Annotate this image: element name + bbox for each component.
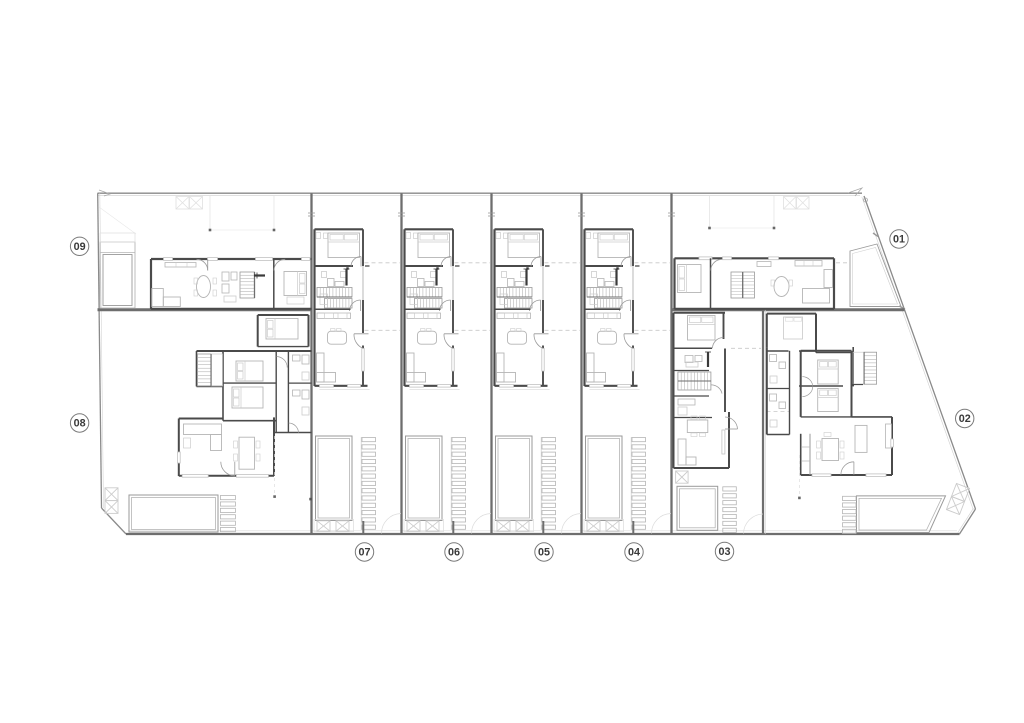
svg-text:08: 08 bbox=[74, 418, 86, 430]
svg-text:02: 02 bbox=[959, 413, 971, 425]
svg-text:06: 06 bbox=[448, 547, 460, 559]
svg-text:05: 05 bbox=[538, 547, 550, 559]
svg-text:07: 07 bbox=[358, 547, 370, 559]
svg-text:09: 09 bbox=[74, 241, 86, 253]
svg-text:01: 01 bbox=[893, 234, 905, 246]
svg-text:04: 04 bbox=[628, 547, 640, 559]
svg-text:03: 03 bbox=[718, 546, 730, 558]
